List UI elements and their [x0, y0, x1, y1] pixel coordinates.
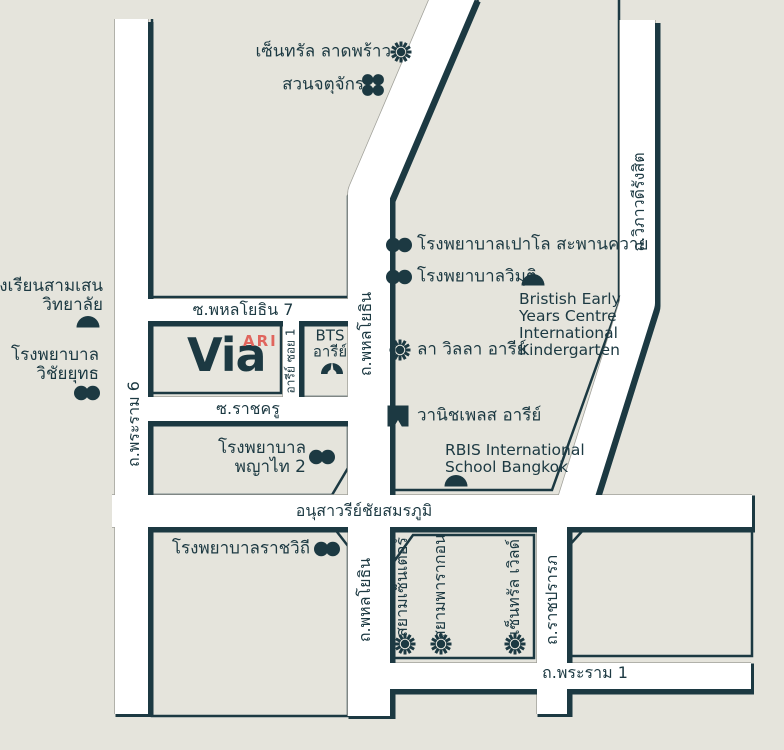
- label-road-phahonyothin-upper: ถ.พหลโยธิน: [357, 292, 375, 376]
- via-ari-site: Via ARI: [149, 322, 281, 393]
- label-vichaiyut-hospital: โรงพยาบาล วิชัยยุทธ: [11, 346, 99, 384]
- bristish-line1: Bristish Early: [519, 291, 621, 308]
- label-road-ari-soi1: อารีย์ ซอย 1: [284, 328, 297, 393]
- label-phyathai2-hospital: โรงพยาบาล พญาไท 2: [218, 439, 306, 477]
- label-siam-paragon: สยามพารากอน: [431, 534, 449, 640]
- bristish-line3: International: [519, 325, 621, 342]
- label-rajavithi-hospital: โรงพยาบาลราชวิถี: [172, 539, 310, 558]
- map-graphics: [0, 0, 784, 750]
- vichaiyut-line1: โรงพยาบาล: [11, 346, 99, 365]
- ari-location-map: เซ็นทรัล ลาดพร้าว สวนจตุจักร โรงพยาบาลเป…: [0, 0, 784, 750]
- phyathai-line1: โรงพยาบาล: [218, 439, 306, 458]
- label-samsen-school: โรงเรียนสามเสน วิทยาลัย: [0, 277, 103, 315]
- phyathai-line2: พญาไท 2: [218, 458, 306, 477]
- bristish-line2: Years Centre: [519, 308, 621, 325]
- label-bristish-kindergarten: Bristish Early Years Centre Internationa…: [519, 291, 621, 359]
- label-bts-ari: อารีย์: [313, 344, 347, 361]
- label-rbis-school: RBIS International School Bangkok: [445, 442, 585, 476]
- label-wanich-place-ari: วานิชเพลส อารีย์: [417, 406, 541, 425]
- label-road-ratchaprarop: ถ.ราชปรารภ: [543, 555, 561, 645]
- label-la-villa-ari: ลา วิลลา อารีย์: [417, 340, 527, 359]
- label-road-rama1: ถ.พระราม 1: [542, 664, 628, 682]
- label-central-ladprao: เซ็นทรัล ลาดพร้าว: [255, 42, 391, 61]
- label-road-soi-rachakru: ซ.ราชครู: [216, 400, 280, 418]
- label-central-world: เซ็นทรัล เวิลด์: [505, 539, 523, 635]
- label-road-viphavadi: ถ.วิภาวดีรังสิต: [630, 152, 648, 251]
- label-vimut-hospital: โรงพยาบาลวิมุติ: [417, 267, 537, 286]
- rbis-line2: School Bangkok: [445, 459, 585, 476]
- label-siam-center: สยามเซ็นเตอร์: [393, 537, 411, 637]
- samsen-line2: วิทยาลัย: [0, 296, 103, 315]
- via-logo-sub: ARI: [243, 334, 278, 349]
- samsen-line1: โรงเรียนสามเสน: [0, 277, 103, 296]
- block-southeast: [567, 528, 752, 656]
- label-road-phahonyothin-lower: ถ.พหลโยธิน: [356, 558, 374, 642]
- label-chatuchak-park: สวนจตุจักร: [282, 75, 364, 94]
- label-road-soi-phahonyothin7: ซ.พหลโยธิน 7: [193, 301, 294, 319]
- label-road-victory-monument: อนุสาวรีย์ชัยสมรภูมิ: [296, 502, 432, 520]
- label-road-rama6: ถ.พระราม 6: [125, 381, 143, 467]
- label-paolo-hospital: โรงพยาบาลเปาโล สะพานควาย: [417, 235, 648, 254]
- rbis-line1: RBIS International: [445, 442, 585, 459]
- vichaiyut-line2: วิชัยยุทธ: [11, 365, 99, 384]
- bristish-line4: Kindergarten: [519, 342, 621, 359]
